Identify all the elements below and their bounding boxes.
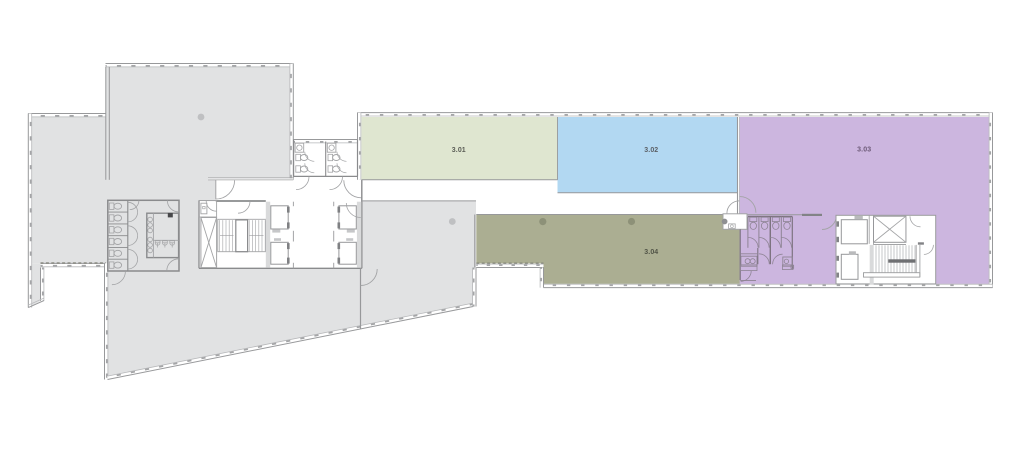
svg-text:3.01: 3.01	[452, 147, 466, 154]
svg-text:3.04: 3.04	[644, 249, 658, 256]
svg-text:3.03: 3.03	[857, 147, 871, 154]
svg-text:3.02: 3.02	[644, 147, 658, 154]
